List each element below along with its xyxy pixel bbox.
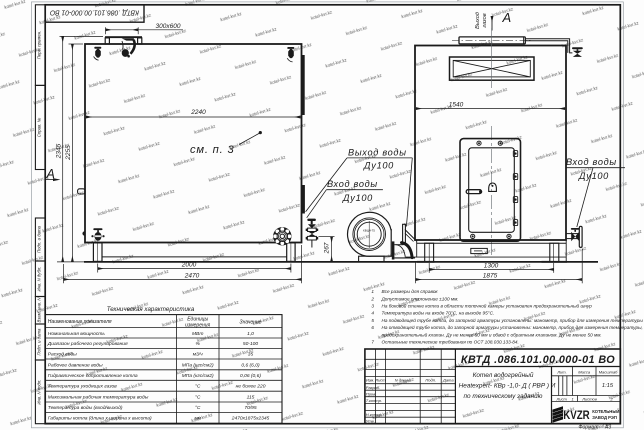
svg-text:2: 2 — [370, 296, 374, 301]
svg-text:Наименование показателя: Наименование показателя — [48, 319, 112, 325]
svg-text:1: 1 — [572, 396, 574, 401]
svg-text:2240: 2240 — [190, 109, 206, 116]
svg-text:ЗАВОД РЭП: ЗАВОД РЭП — [592, 415, 617, 420]
svg-text:м3/ч: м3/ч — [193, 352, 203, 358]
svg-text:мм: мм — [194, 417, 201, 422]
svg-text:3: 3 — [371, 304, 374, 309]
svg-text:Формат: Формат — [579, 425, 599, 430]
svg-text:1,0: 1,0 — [247, 331, 254, 337]
svg-text:0,06 (0,6): 0,06 (0,6) — [240, 373, 261, 379]
svg-text:1540: 1540 — [449, 101, 464, 108]
svg-text:Номинальная мощность: Номинальная мощность — [48, 331, 106, 337]
svg-text:50-100: 50-100 — [243, 341, 259, 347]
svg-text:Температура воды на входе 70°: Температура воды на входе 70°С, на выход… — [382, 311, 495, 316]
svg-text:°С: °С — [195, 394, 201, 400]
svg-text:Инв. N подл.: Инв. N подл. — [37, 379, 42, 404]
svg-text:Температура уходящих газов: Температура уходящих газов — [48, 384, 117, 390]
svg-text:Лист: Лист — [556, 396, 568, 401]
svg-text:Температура воды (вход/выход): Температура воды (вход/выход) — [48, 405, 123, 411]
svg-text:7: 7 — [371, 340, 374, 345]
svg-text:6: 6 — [371, 325, 374, 330]
svg-text:N докум.: N докум. — [395, 378, 411, 383]
svg-text:Heatexpert- КВр -1,0- Д ( РВР: Heatexpert- КВр -1,0- Д ( РВР ) И — [459, 382, 556, 389]
svg-text:Все размеры для справок: Все размеры для справок — [382, 289, 439, 294]
svg-text:2345: 2345 — [55, 143, 62, 159]
svg-text:не более 220: не более 220 — [236, 384, 266, 390]
svg-text:Котел водогрейный: Котел водогрейный — [473, 371, 534, 379]
svg-text:КВТД .086.101.00.000-01 ВО: КВТД .086.101.00.000-01 ВО — [461, 354, 615, 366]
svg-text:измерения: измерения — [185, 322, 210, 328]
svg-text:%: % — [196, 341, 201, 347]
svg-text:Разраб.: Разраб. — [366, 385, 380, 390]
svg-text:Т.контр.: Т.контр. — [366, 398, 382, 403]
svg-text:300х600: 300х600 — [156, 23, 181, 30]
svg-text:KVZR: KVZR — [563, 408, 590, 423]
svg-text:35: 35 — [248, 352, 254, 358]
svg-text:Остальные технические требован: Остальные технические требования по ОСТ … — [382, 340, 519, 345]
svg-text:КВТД .086.101.00.000-01 ВО: КВТД .086.101.00.000-01 ВО — [50, 9, 139, 18]
svg-text:Изм.: Изм. — [366, 378, 375, 383]
svg-text:2000: 2000 — [181, 262, 197, 269]
svg-text:Лит.: Лит. — [556, 370, 566, 375]
svg-text:5: 5 — [371, 318, 374, 323]
svg-text:0,6 (6,0): 0,6 (6,0) — [241, 362, 260, 368]
svg-text:На отводящей трубе котла, до з: На отводящей трубе котла, до запорной ар… — [382, 324, 643, 330]
svg-text:70/95: 70/95 — [244, 405, 257, 411]
svg-text:КВЦ4-75: КВЦ4-75 — [363, 229, 375, 233]
svg-text:1:15: 1:15 — [602, 383, 614, 389]
svg-text:Пров.: Пров. — [366, 392, 377, 397]
svg-text:1875: 1875 — [483, 272, 498, 279]
svg-text:Выход воды: Выход воды — [348, 147, 407, 157]
svg-text:Выход: Выход — [475, 12, 481, 29]
svg-text:Перв. примен.: Перв. примен. — [37, 31, 42, 60]
svg-text:Гидравлическое сопротивление к: Гидравлическое сопротивление котла — [48, 373, 138, 379]
svg-text:Максимальная рабочая температу: Максимальная рабочая температура воды — [48, 394, 149, 400]
svg-text:А: А — [502, 10, 512, 25]
svg-text:2255: 2255 — [65, 145, 72, 161]
svg-text:Масштаб: Масштаб — [599, 370, 618, 375]
svg-text:2470х1875х2345: 2470х1875х2345 — [231, 416, 270, 422]
svg-text:Ду100: Ду100 — [578, 171, 609, 181]
svg-text:Подп. и дата: Подп. и дата — [37, 225, 42, 253]
svg-text:Ду100: Ду100 — [342, 193, 373, 203]
svg-text:Листов: Листов — [581, 396, 597, 401]
svg-text:На подводящей трубе котла, д: На подводящей трубе котла, до запорной а… — [382, 317, 644, 323]
svg-text:МВт: МВт — [192, 331, 203, 337]
svg-text:МПа (кгс/см2): МПа (кгс/см2) — [182, 362, 214, 368]
svg-text:Утв.: Утв. — [366, 419, 375, 424]
svg-text:предохранительный клапан. Ду н: предохранительный клапан. Ду не менее 50… — [382, 331, 602, 337]
svg-text:Подп. и дата: Подп. и дата — [37, 328, 42, 356]
svg-text:Расход воды: Расход воды — [48, 352, 77, 358]
svg-text:МПа (кгс/см2): МПа (кгс/см2) — [182, 373, 214, 379]
svg-text:267: 267 — [324, 242, 331, 254]
svg-text:Ду100: Ду100 — [363, 160, 394, 170]
svg-text:1: 1 — [371, 289, 374, 294]
svg-text:КОТЕЛЬНЫЙ: КОТЕЛЬНЫЙ — [592, 409, 619, 414]
svg-text:Взам. инв. N: Взам. инв. N — [37, 297, 42, 323]
svg-text:Лист: Лист — [374, 378, 386, 383]
svg-text:по техническому заданию: по техническому заданию — [464, 392, 543, 400]
svg-text:А3: А3 — [604, 425, 611, 430]
svg-text:Значение: Значение — [240, 320, 262, 326]
svg-text:°С: °С — [195, 384, 201, 390]
svg-text:Инв. N дубл.: Инв. N дубл. — [37, 267, 42, 292]
svg-text:Дата: Дата — [442, 378, 454, 383]
svg-text:Рабочее давление воды: Рабочее давление воды — [48, 362, 103, 368]
svg-text:Н.контр.: Н.контр. — [366, 412, 383, 417]
svg-text:Диапазон рабочего регулировани: Диапазон рабочего регулирования — [47, 341, 128, 347]
svg-text:На боковой стенке котла в обла: На боковой стенке котла в области топочн… — [382, 303, 593, 309]
svg-text:Габариты котла (длина х ширина: Габариты котла (длина х ширина х высота) — [48, 416, 152, 422]
svg-text:Справ. №: Справ. № — [37, 117, 42, 137]
svg-text:Вход воды: Вход воды — [566, 157, 617, 167]
svg-text:Вход воды: Вход воды — [327, 179, 378, 189]
svg-text:Подп.: Подп. — [425, 378, 436, 383]
svg-text:газов: газов — [482, 13, 488, 27]
svg-text:4: 4 — [371, 311, 374, 316]
svg-text:115: 115 — [247, 394, 255, 400]
svg-text:1300: 1300 — [484, 262, 499, 269]
svg-text:2470: 2470 — [184, 272, 200, 279]
svg-text:°С: °С — [195, 405, 201, 411]
svg-text:Масса: Масса — [578, 370, 591, 375]
svg-text:см. п. 3: см. п. 3 — [190, 144, 234, 156]
svg-text:Техническая характеристика: Техническая характеристика — [107, 306, 195, 313]
svg-text:Допустимое отклонение ±100 мм: Допустимое отклонение ±100 мм. — [381, 296, 459, 301]
